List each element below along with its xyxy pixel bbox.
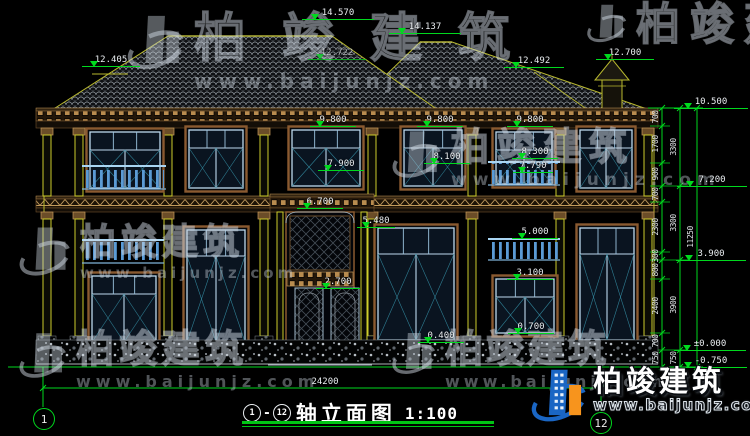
axis-bubble-1-label: 1 — [41, 413, 48, 426]
eave-cornice — [36, 108, 658, 128]
brand-name: 柏竣建筑 — [593, 366, 750, 396]
cad-elevation-screenshot: 柏竣建筑www.baijunjz.com柏竣建筑柏竣建筑www.baijunjz… — [0, 0, 750, 436]
axis-bubble-1: 1 — [33, 408, 55, 430]
entrance-door — [268, 194, 374, 365]
brand-logo-icon — [530, 366, 588, 428]
title-dash: - — [263, 406, 271, 421]
title-axis-to: 12 — [273, 404, 291, 422]
brand-logo: 柏竣建筑 www.baijunjz.com — [530, 366, 750, 428]
title-underline-thin — [242, 426, 494, 427]
roof — [52, 36, 650, 110]
title-scale: 1:100 — [405, 404, 458, 423]
stone-plinth — [36, 340, 658, 364]
title-axis-from: 1 — [243, 404, 261, 422]
brand-url: www.baijunjz.com — [593, 396, 750, 414]
title-underline-thick — [242, 421, 494, 424]
